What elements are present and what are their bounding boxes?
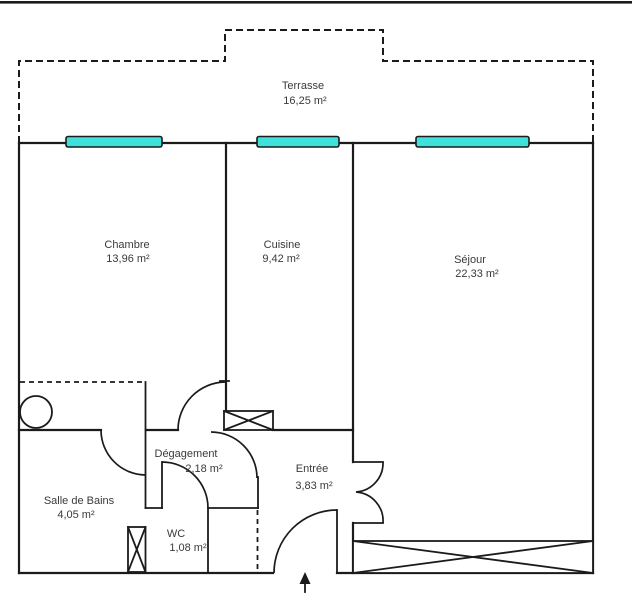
duct-box-wc bbox=[128, 527, 146, 572]
room-label-terrasse: Terrasse bbox=[282, 80, 324, 92]
room-label-wc: WC bbox=[167, 528, 185, 540]
room-label-degagement: Dégagement bbox=[155, 448, 218, 460]
room-area-salle-de-bains: 4,05 m² bbox=[57, 509, 95, 521]
room-label-sejour: Séjour bbox=[454, 254, 486, 266]
door-arc-salle-de-bains bbox=[101, 430, 146, 475]
room-area-degagement: 2,18 m² bbox=[185, 463, 223, 475]
door-double-swing-sejour bbox=[353, 462, 383, 523]
room-label-entree: Entrée bbox=[296, 463, 328, 475]
door-arc-entree bbox=[274, 510, 337, 573]
window-cuisine bbox=[257, 137, 339, 148]
floor-plan-canvas: Terrasse 16,25 m² Chambre 13,96 m² Cuisi… bbox=[0, 0, 632, 593]
vent-box-cuisine bbox=[224, 411, 273, 430]
room-area-sejour: 22,33 m² bbox=[455, 268, 499, 280]
floor-plan: Terrasse 16,25 m² Chambre 13,96 m² Cuisi… bbox=[0, 0, 632, 593]
room-area-entree: 3,83 m² bbox=[295, 480, 333, 492]
door-arc-chambre bbox=[178, 382, 225, 430]
room-label-cuisine: Cuisine bbox=[264, 239, 301, 251]
room-area-chambre: 13,96 m² bbox=[106, 253, 150, 265]
window-sejour bbox=[416, 137, 529, 148]
water-heater-circle bbox=[20, 396, 52, 428]
entrance-arrow-icon bbox=[300, 572, 311, 592]
hatched-box-sejour bbox=[353, 541, 593, 573]
room-area-cuisine: 9,42 m² bbox=[262, 253, 300, 265]
top-border-line bbox=[0, 1, 632, 4]
room-area-terrasse: 16,25 m² bbox=[283, 95, 327, 107]
room-label-salle-de-bains: Salle de Bains bbox=[44, 495, 115, 507]
room-label-chambre: Chambre bbox=[104, 239, 149, 251]
room-area-wc: 1,08 m² bbox=[169, 542, 207, 554]
window-chambre bbox=[66, 137, 162, 148]
